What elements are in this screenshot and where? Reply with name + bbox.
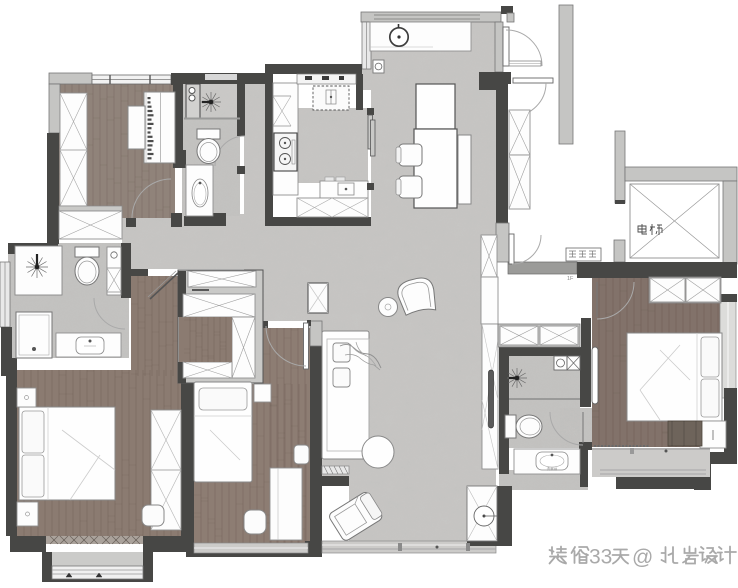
svg-text:@: @ <box>632 546 653 569</box>
svg-text:1F: 1F <box>567 276 574 282</box>
svg-text:洗漱台: 洗漱台 <box>547 466 558 471</box>
svg-text:33: 33 <box>589 546 612 569</box>
